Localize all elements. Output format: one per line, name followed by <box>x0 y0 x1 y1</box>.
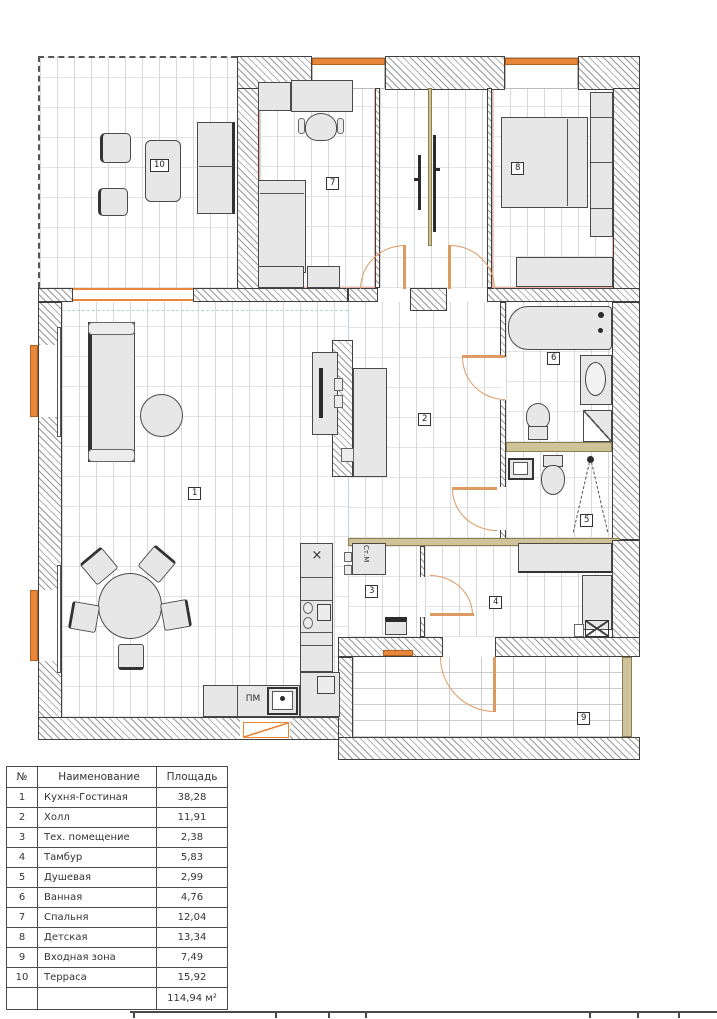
window-top-kids-room <box>505 58 578 65</box>
table-cell-num: 7 <box>7 908 38 928</box>
window-entry-strip <box>383 650 413 656</box>
corridor-door-leaf <box>418 155 421 210</box>
column-header-area: Площадь <box>157 767 228 788</box>
shower-toilet-bowl <box>541 465 565 495</box>
column-header-name: Наименование <box>38 767 157 788</box>
corridor-door-handle <box>436 168 440 171</box>
cooktop-burner <box>303 602 313 614</box>
office-chair-armrest <box>337 118 344 134</box>
tambour-wardrobe-top <box>518 543 612 573</box>
wall-segment <box>487 288 640 302</box>
room-label-tambour: 4 <box>489 596 502 609</box>
oven-box <box>317 604 331 621</box>
hob-symbol: × <box>308 548 326 563</box>
tambour-doormat <box>585 620 609 637</box>
table-cell-name: Ванная <box>38 888 157 908</box>
wall-entry-left <box>338 657 353 740</box>
title-block-tick <box>133 1011 135 1018</box>
terrace-armchair <box>98 188 128 216</box>
door-leaf-kids <box>448 245 451 289</box>
table-cell-area: 7,49 <box>157 948 228 968</box>
shower-sink-basin <box>513 462 528 475</box>
living-sofa <box>88 322 135 462</box>
living-sofa-armrest <box>88 449 135 462</box>
title-block-tick <box>328 1011 330 1018</box>
kids-wardrobe-divider <box>591 162 612 163</box>
dishwasher-label: ПМ <box>239 694 267 704</box>
dining-chair <box>68 601 100 633</box>
coffee-table <box>140 394 183 437</box>
table-cell-name: Душевая <box>38 868 157 888</box>
kitchen-faucet <box>280 696 285 701</box>
terrace-armchair <box>100 133 131 163</box>
kitchen-counter-divider <box>301 632 332 633</box>
table-cell-area: 13,34 <box>157 928 228 948</box>
window-left-living-1 <box>30 345 38 417</box>
table-cell-name: Тех. помещение <box>38 828 157 848</box>
tambour-step <box>574 624 584 637</box>
cooktop-burner <box>303 617 313 629</box>
hall-wardrobe <box>353 368 387 477</box>
title-block-tick <box>275 1011 277 1018</box>
table-row: 8Детская13,34 <box>7 928 228 948</box>
living-sofa-armrest <box>88 322 135 335</box>
table-cell-name: Терраса <box>38 968 157 988</box>
tech-small-box <box>344 565 352 575</box>
zone-guide-line <box>62 310 348 311</box>
floor-plan-page: { "legend_table": { "headers": {"num": "… <box>0 0 717 1019</box>
kitchen-corner-inner <box>317 676 335 694</box>
table-cell-name: Холл <box>38 808 157 828</box>
entry-right-strip <box>622 657 632 737</box>
table-cell-num: 4 <box>7 848 38 868</box>
window-bottom-kitchen <box>243 722 289 738</box>
total-area-value: 114,94 м² <box>157 988 228 1010</box>
table-cell-num: 6 <box>7 888 38 908</box>
table-row: 3Тех. помещение2,38 <box>7 828 228 848</box>
tv-console <box>312 352 338 435</box>
table-total-row: 114,94 м² <box>7 988 228 1010</box>
column-header-num: № <box>7 767 38 788</box>
table-cell-num: 8 <box>7 928 38 948</box>
table-row: 7Спальня12,04 <box>7 908 228 928</box>
title-block-tick <box>678 1011 680 1018</box>
table-cell-area: 5,83 <box>157 848 228 868</box>
bedroom-bench <box>258 266 304 288</box>
window-top-bedroom <box>312 58 385 65</box>
bedroom-desk <box>291 80 353 112</box>
kitchen-bottom-divider <box>237 686 238 716</box>
bath-corner-shelf <box>583 410 612 442</box>
wall-bottom-living <box>38 717 350 740</box>
bedroom-nightstand <box>307 266 340 288</box>
door-leaf-entry <box>493 657 496 712</box>
table-row: 2Холл11,91 <box>7 808 228 828</box>
table-header-row: № Наименование Площадь <box>7 767 228 788</box>
room-label-shower: 5 <box>580 514 593 527</box>
table-cell-num: 10 <box>7 968 38 988</box>
wall-right-upper <box>613 88 640 302</box>
kids-dresser <box>516 257 613 287</box>
wall-segment <box>495 637 640 657</box>
table-cell-name: Детская <box>38 928 157 948</box>
bathtub <box>508 306 612 350</box>
dining-table <box>98 573 162 639</box>
room-label-tech: 3 <box>365 585 378 598</box>
speaker <box>334 378 343 391</box>
table-cell-name: Тамбур <box>38 848 157 868</box>
corridor-door-leaf <box>433 135 436 232</box>
table-row: 4Тамбур5,83 <box>7 848 228 868</box>
terrace-sofa <box>197 122 235 214</box>
room-label-terrace: 10 <box>150 159 169 172</box>
title-block-tick <box>365 1011 367 1018</box>
table-row: 10Терраса15,92 <box>7 968 228 988</box>
door-opening <box>500 487 506 530</box>
table-row: 1Кухня-Гостиная38,28 <box>7 788 228 808</box>
table-cell-num: 1 <box>7 788 38 808</box>
room-label-kitchen-living: 1 <box>188 487 201 500</box>
table-row: 6Ванная4,76 <box>7 888 228 908</box>
bath-toilet-tank <box>528 426 548 440</box>
kids-wardrobe-divider <box>591 117 612 118</box>
table-cell-num: 9 <box>7 948 38 968</box>
window-left-living-2 <box>30 590 38 661</box>
table-cell-name: Кухня-Гостиная <box>38 788 157 808</box>
door-leaf-bedroom <box>403 245 406 289</box>
hall-wardrobe-box <box>341 448 354 462</box>
title-block-top-edge <box>130 1011 717 1013</box>
wall-segment <box>578 56 640 90</box>
table-cell-num: 3 <box>7 828 38 848</box>
table-row: 9Входная зона7,49 <box>7 948 228 968</box>
table-cell-area: 12,04 <box>157 908 228 928</box>
curtain-line <box>57 327 61 437</box>
wall-right-mid <box>612 302 640 540</box>
bedroom-cabinet <box>258 82 291 111</box>
tv <box>319 368 323 418</box>
speaker <box>334 395 343 408</box>
kitchen-counter-divider <box>301 577 332 578</box>
title-block-tick <box>589 1011 591 1018</box>
wall-entry-bottom <box>338 737 640 760</box>
boiler <box>385 617 407 635</box>
bedroom-office-chair <box>305 113 337 141</box>
door-opening <box>420 577 425 617</box>
wall-segment <box>385 56 505 90</box>
floor-plan-canvas: × ПМ Ст.М 1 2 3 4 5 6 7 8 9 10 <box>0 0 717 760</box>
table-cell-area: 4,76 <box>157 888 228 908</box>
wall-segment <box>410 288 447 311</box>
table-cell-num: 5 <box>7 868 38 888</box>
table-cell-name: Входная зона <box>38 948 157 968</box>
room-label-entry: 9 <box>577 712 590 725</box>
room-legend-table: № Наименование Площадь 1Кухня-Гостиная38… <box>6 766 228 1010</box>
kids-bed-headline <box>567 119 568 206</box>
table-cell-area: 2,99 <box>157 868 228 888</box>
bedroom-bed-pillow-line <box>260 193 304 194</box>
corridor-divider <box>428 88 432 246</box>
bathtub-drain <box>598 328 603 333</box>
washing-machine-label: Ст.М <box>362 545 370 562</box>
wall-segment <box>193 288 348 302</box>
door-leaf-tambour <box>430 613 474 616</box>
table-cell-area: 11,91 <box>157 808 228 828</box>
title-block-tick <box>637 1011 639 1018</box>
table-row: 5Душевая2,99 <box>7 868 228 888</box>
dining-chair <box>160 599 192 631</box>
terrace-sofa-cushion-line <box>199 166 233 167</box>
bathtub-faucet <box>598 312 604 318</box>
kids-wardrobe-divider <box>591 208 612 209</box>
room-label-hall: 2 <box>418 413 431 426</box>
terrace-sliding-door <box>73 288 193 301</box>
kids-wardrobe <box>590 92 613 237</box>
tech-small-box <box>344 552 352 562</box>
kitchen-counter-divider <box>301 645 332 646</box>
table-cell-area: 38,28 <box>157 788 228 808</box>
room-label-bath: 6 <box>547 352 560 365</box>
wall-terrace-bedroom <box>237 88 259 302</box>
room-label-kids-room: 8 <box>511 162 524 175</box>
bath-threshold <box>506 442 612 452</box>
dining-chair <box>118 644 144 670</box>
table-cell-num: 2 <box>7 808 38 828</box>
office-chair-armrest <box>298 118 305 134</box>
table-cell-name: Спальня <box>38 908 157 928</box>
wall-corridor-kids <box>487 88 492 288</box>
curtain-line <box>57 565 61 673</box>
wall-segment <box>38 288 73 302</box>
kitchen-counter-divider <box>301 600 332 601</box>
room-label-bedroom: 7 <box>326 177 339 190</box>
table-body: 1Кухня-Гостиная38,282Холл11,913Тех. поме… <box>7 788 228 988</box>
bath-sink-oval <box>585 362 606 396</box>
corridor-door-handle <box>414 178 418 181</box>
wall-segment <box>348 288 378 302</box>
table-cell-area: 15,92 <box>157 968 228 988</box>
table-cell-area: 2,38 <box>157 828 228 848</box>
